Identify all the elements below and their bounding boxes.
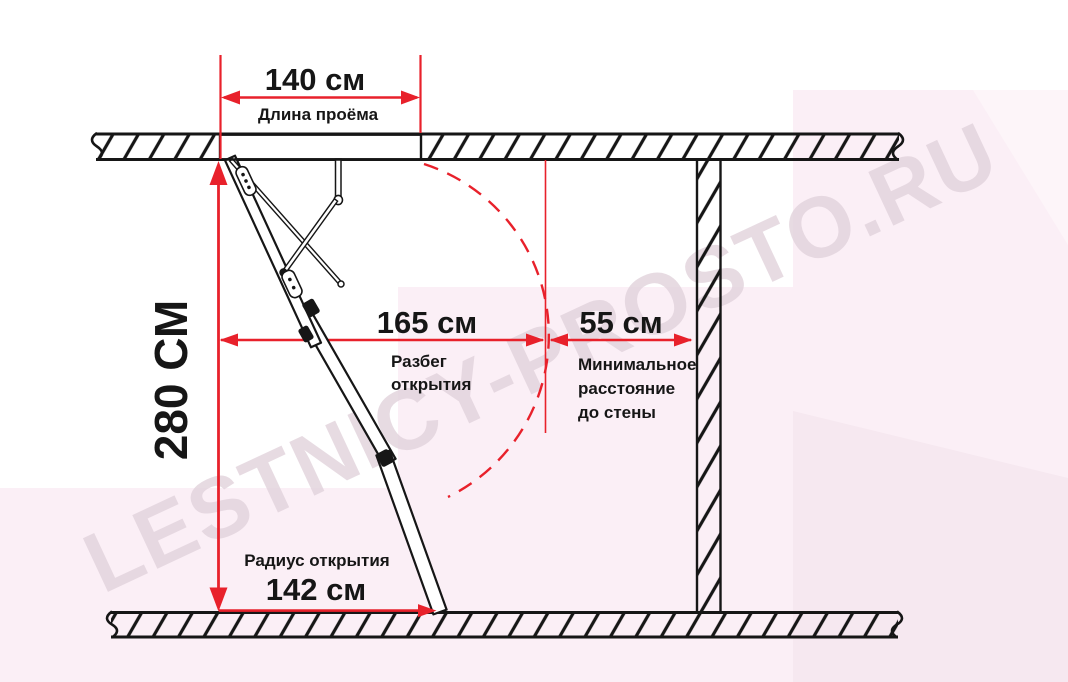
arrowhead-left xyxy=(221,91,240,105)
opening-span-label-1: Разбег xyxy=(391,352,447,371)
wall-distance-value: 55 см xyxy=(579,305,662,340)
opening-radius-value: 142 см xyxy=(266,572,367,607)
arrowhead-left xyxy=(220,334,239,347)
wall-distance-label-2: расстояние xyxy=(578,379,675,398)
wall-hatch xyxy=(697,160,720,612)
wall-section xyxy=(697,160,721,612)
height-value: 280 СМ xyxy=(145,300,197,460)
arrowhead-right xyxy=(401,91,420,105)
floor-section xyxy=(107,612,902,638)
ceiling-section xyxy=(92,133,903,160)
mechanism-arm-short xyxy=(282,199,337,273)
hatch-strut xyxy=(336,159,342,198)
opening-radius-label: Радиус открытия xyxy=(244,551,389,570)
ladder-rail-upper xyxy=(225,156,321,348)
wall-distance-label-3: до стены xyxy=(578,403,656,422)
opening-length-value: 140 см xyxy=(265,62,366,97)
ceiling-hatch xyxy=(96,134,899,159)
arm-end-cap xyxy=(338,281,344,287)
ceiling-opening-box xyxy=(220,135,421,160)
floor-hatch xyxy=(111,613,898,637)
arrowhead-up xyxy=(210,161,228,185)
attic-ladder-dimensions-diagram: LESTNICY-PROSTO.RU xyxy=(0,0,1068,682)
diagram-canvas: LESTNICY-PROSTO.RU xyxy=(0,0,1068,682)
wall-distance-label-1: Минимальное xyxy=(578,355,697,374)
opening-span-label-2: открытия xyxy=(391,375,471,394)
opening-length-label: Длина проёма xyxy=(258,105,379,124)
opening-span-value: 165 см xyxy=(377,305,478,340)
